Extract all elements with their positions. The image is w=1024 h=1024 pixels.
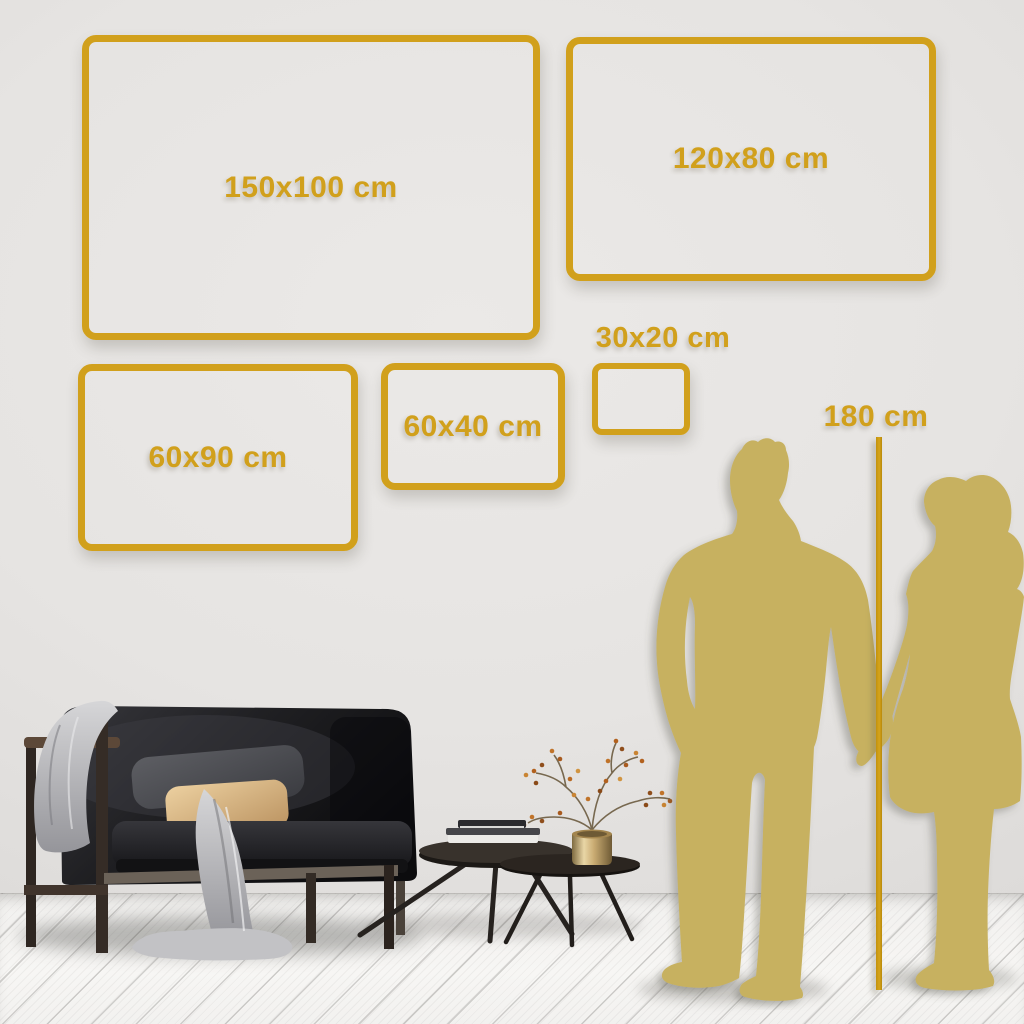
size-frame-120x80: 120x80 cm <box>566 37 936 281</box>
mid-right-leg <box>306 873 316 943</box>
sofa-rear-left-leg <box>26 741 36 947</box>
size-label-60x40: 60x40 cm <box>403 410 542 444</box>
height-marker-line <box>876 437 882 990</box>
size-frame-60x40: 60x40 cm <box>381 363 565 490</box>
man-silhouette <box>656 438 893 1001</box>
size-guide-scene: 150x100 cm 120x80 cm 60x90 cm 60x40 cm 3… <box>0 0 1024 1024</box>
size-label-30x20: 30x20 cm <box>563 322 763 355</box>
size-frame-60x90: 60x90 cm <box>78 364 358 551</box>
left-side-rail <box>24 885 108 895</box>
blanket-pool <box>132 928 292 960</box>
size-label-60x90: 60x90 cm <box>148 441 287 475</box>
books <box>446 820 540 843</box>
size-label-120x80: 120x80 cm <box>673 142 829 176</box>
couple-silhouette <box>630 435 1024 1010</box>
brass-vase <box>572 830 612 866</box>
size-label-150x100: 150x100 cm <box>224 171 398 205</box>
size-frame-150x100: 150x100 cm <box>82 35 540 340</box>
coffee-tables <box>320 735 680 950</box>
height-marker-label: 180 cm <box>796 400 956 434</box>
front-left-post <box>96 707 108 953</box>
size-frame-30x20 <box>592 363 690 435</box>
small-table-legs <box>506 875 632 945</box>
small-table-top <box>500 854 640 874</box>
